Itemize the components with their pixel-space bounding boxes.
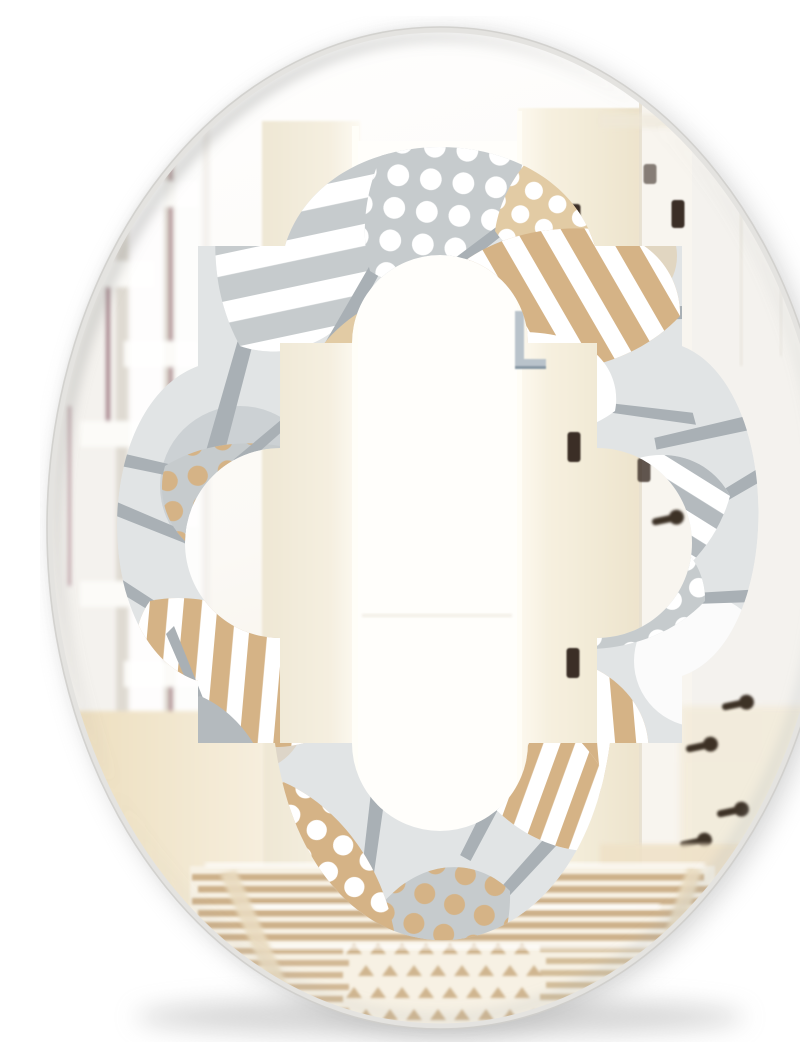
door-hinge-reflection	[568, 432, 581, 462]
door-hinge-reflection	[644, 164, 657, 184]
door-hinge-reflection	[672, 200, 685, 228]
product-photo: Oval frameless wall mirror with retro bo…	[40, 16, 800, 1042]
door-hinge-reflection	[567, 648, 580, 678]
mirror-photo-svg: Product photo: mirror against white wall…	[40, 16, 800, 1042]
